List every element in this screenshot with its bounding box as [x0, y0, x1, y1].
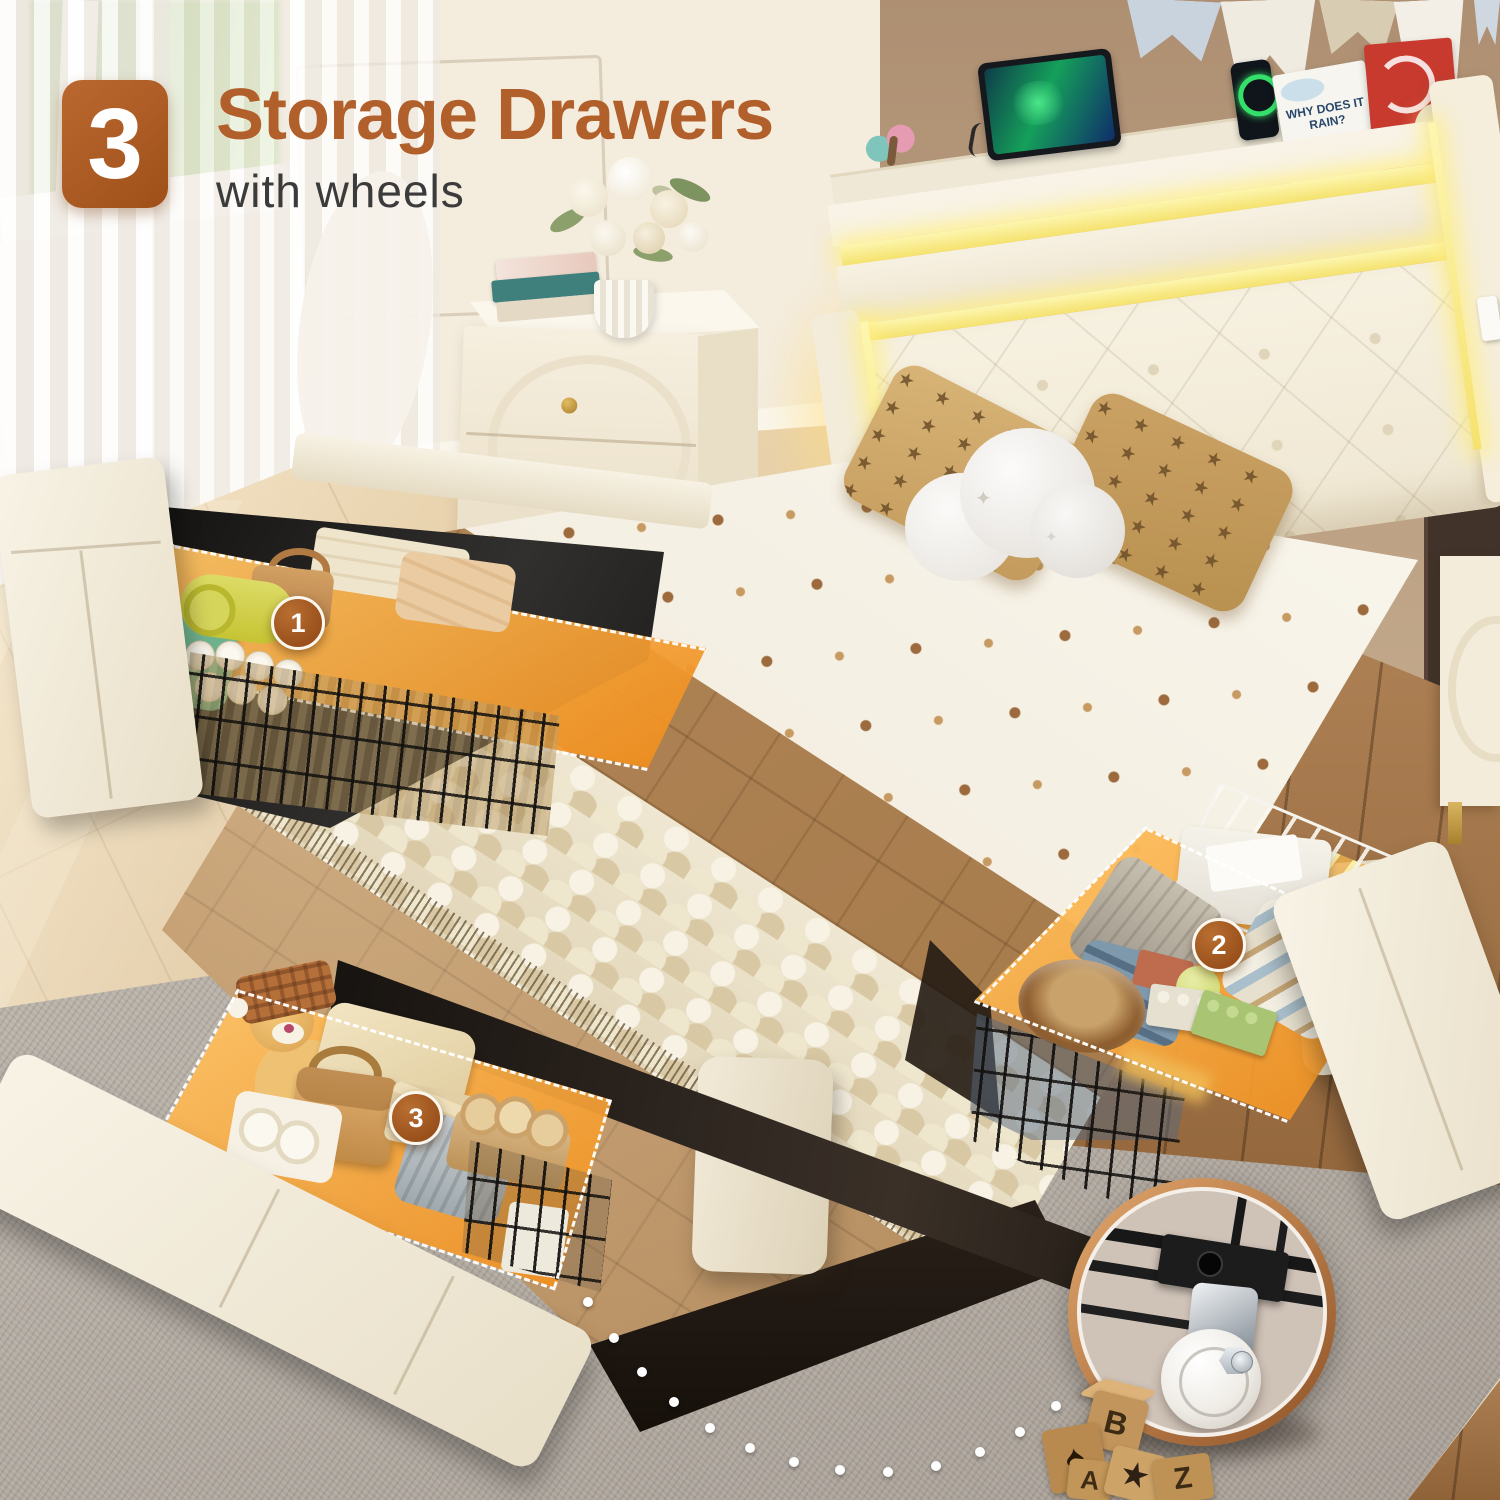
feature-subtitle: with wheels: [216, 164, 716, 218]
callout-badge-1: 1: [271, 596, 325, 650]
caster-wheel: [1161, 1329, 1261, 1429]
caster-axle: [1231, 1351, 1253, 1373]
feature-title: Storage Drawers: [216, 74, 1116, 156]
feature-count-badge: 3: [62, 80, 168, 208]
callout-badge-3: 3: [389, 1091, 443, 1145]
panel-seam: [1358, 888, 1463, 1171]
panel-seam: [393, 1276, 455, 1395]
nightstand-right-circle-trim: [1448, 616, 1500, 762]
flower: [678, 222, 708, 252]
flower: [590, 220, 626, 256]
panel-seam: [79, 550, 112, 799]
alphabet-block-z: Z: [1151, 1452, 1215, 1500]
cloud-sparkle: ✦: [975, 486, 992, 511]
book-cloud-art: [1279, 75, 1326, 104]
nightstand-right-leg: [1448, 802, 1462, 844]
lego-stud: [1157, 990, 1171, 1004]
flower: [633, 222, 665, 254]
cloud-pillow: ✦ ✦: [905, 428, 1125, 596]
lego-stud: [1225, 1004, 1240, 1019]
cloud-sparkle: ✦: [1045, 528, 1058, 546]
panel-seam: [11, 541, 161, 554]
callout-badge-2: 2: [1192, 918, 1246, 972]
lego-stud: [1176, 993, 1190, 1007]
teddy-nose: [284, 1024, 294, 1033]
product-marketing-image: WHY DOES IT RAIN?: [0, 0, 1500, 1500]
caster-bolt: [1197, 1251, 1223, 1277]
lego-stud: [1244, 1011, 1259, 1026]
lego-stud: [1206, 998, 1221, 1013]
nightstand-right-partial: [1440, 556, 1500, 806]
panel-seam: [219, 1189, 281, 1308]
